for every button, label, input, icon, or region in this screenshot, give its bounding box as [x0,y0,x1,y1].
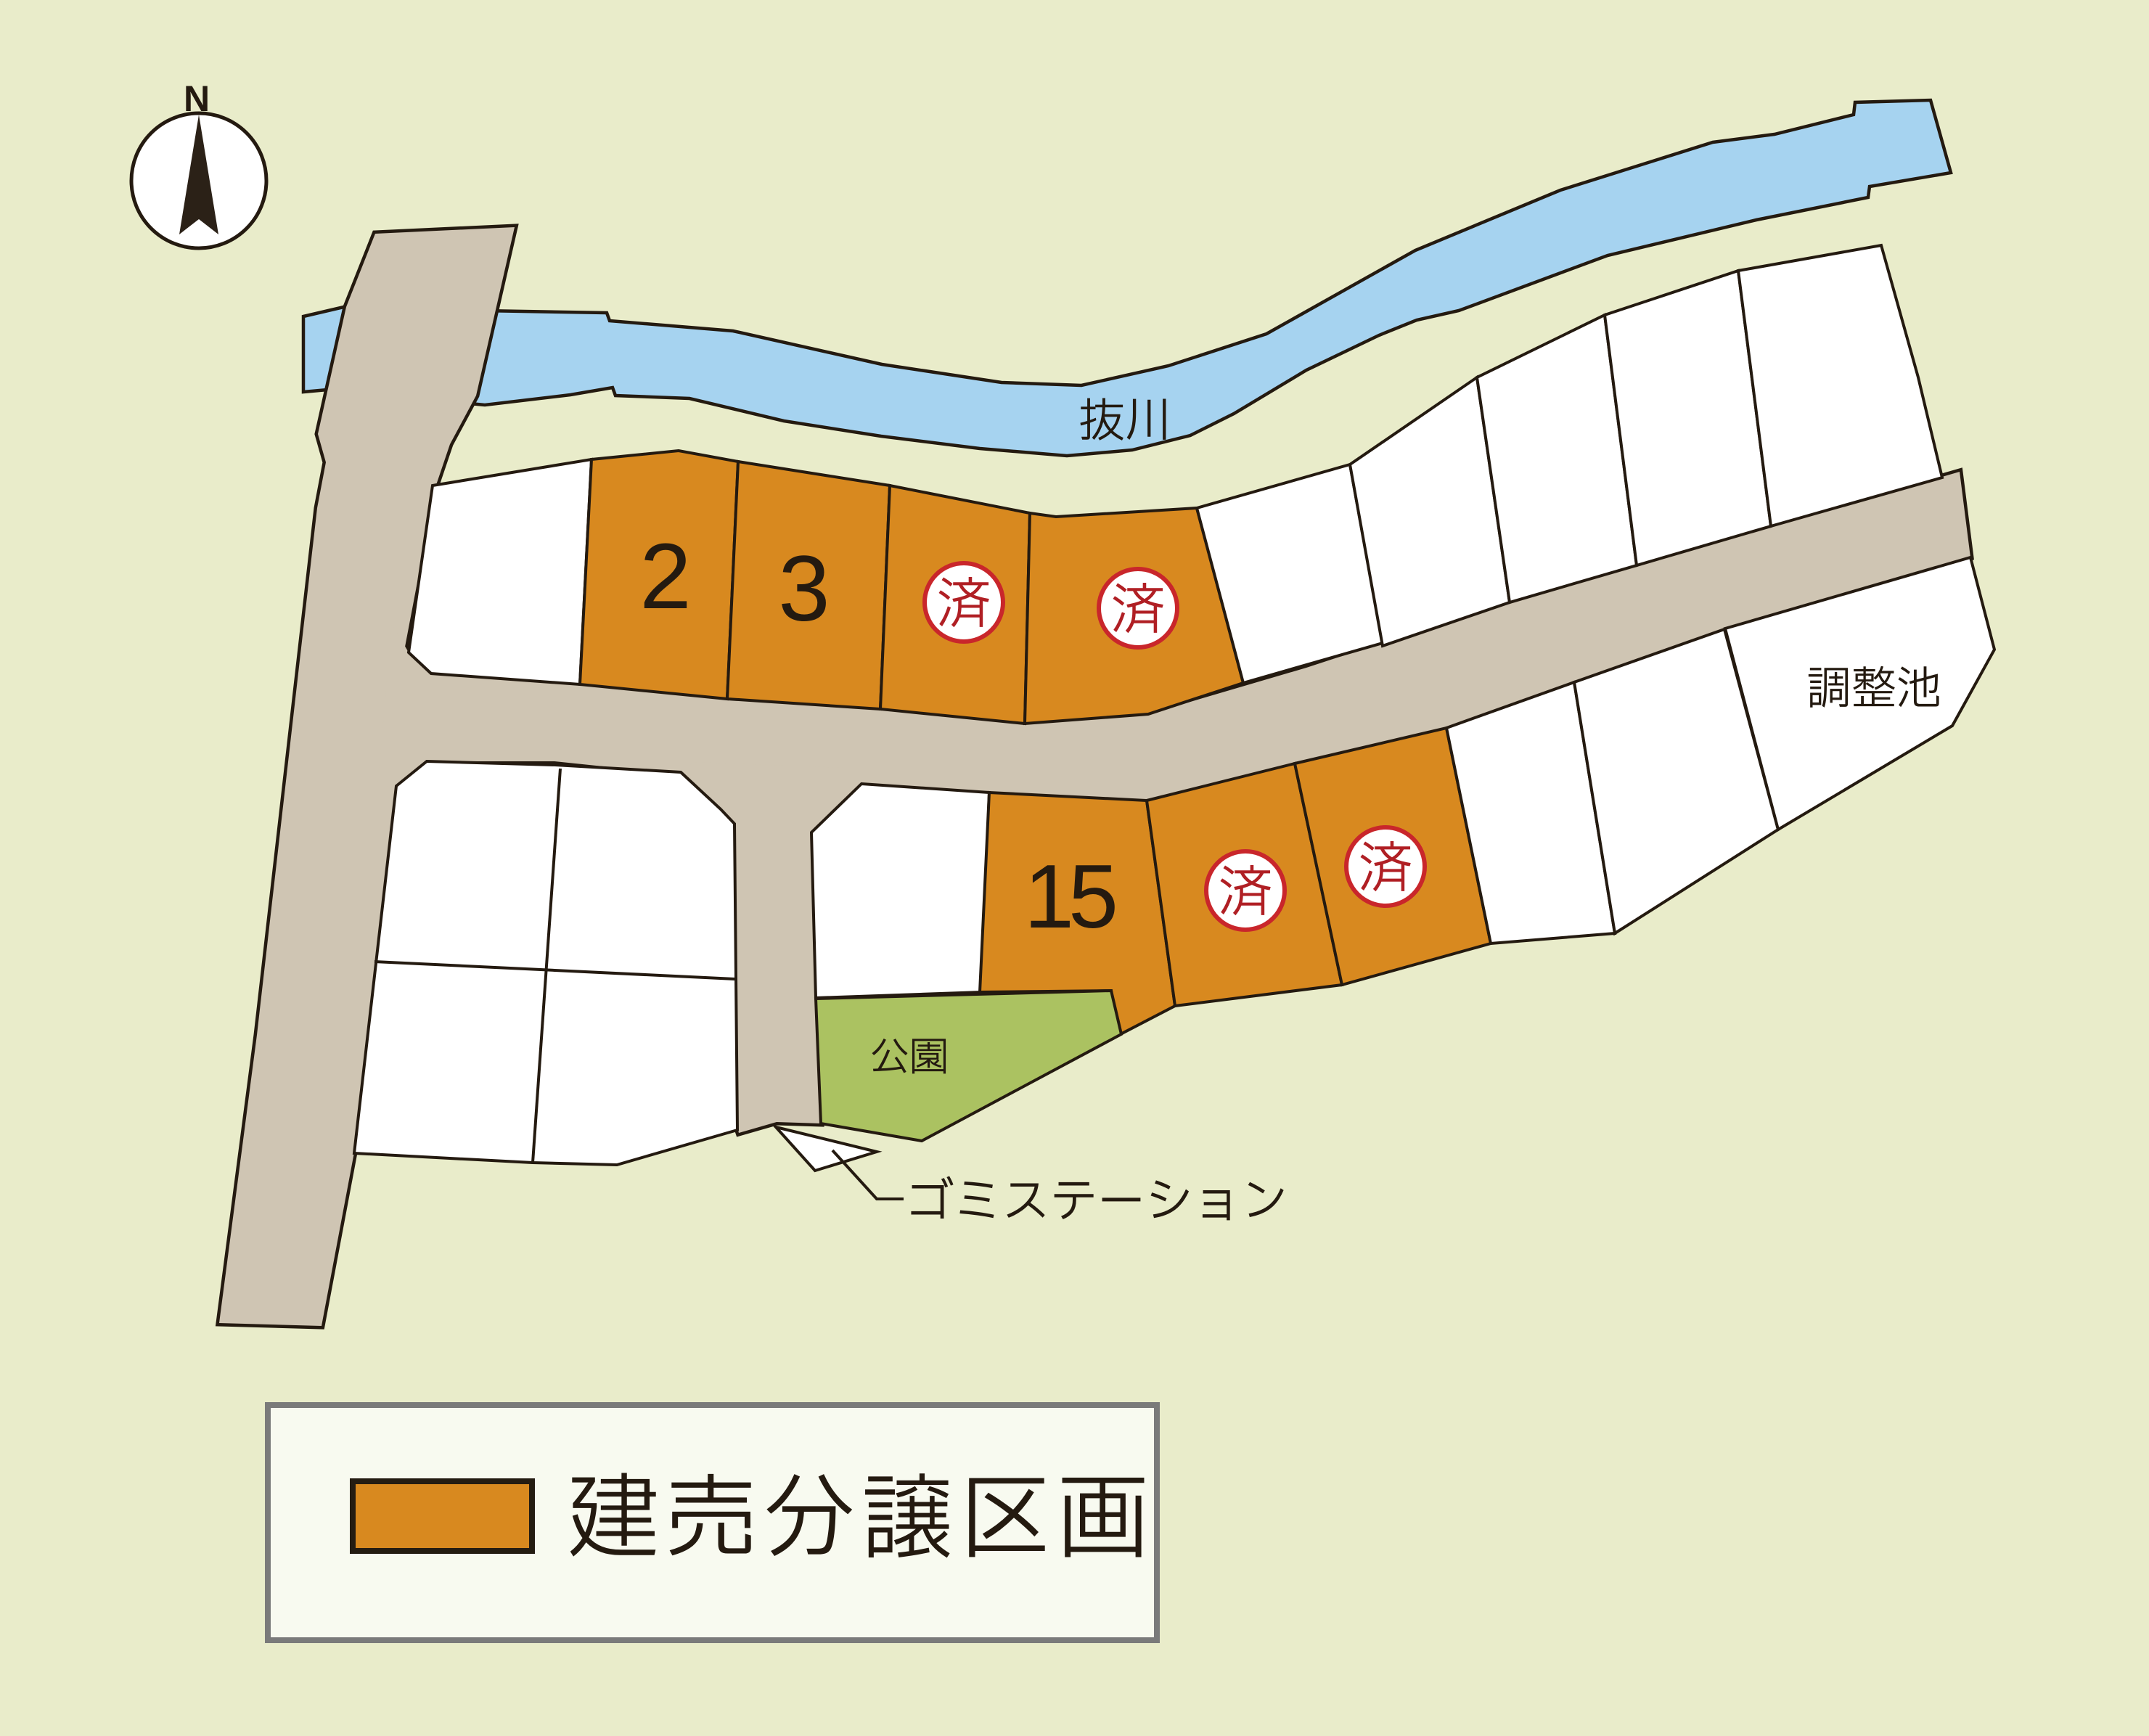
svg-text:15: 15 [1024,847,1115,947]
svg-text:3: 3 [778,537,830,641]
svg-text:N: N [184,78,210,119]
svg-text:2: 2 [639,525,691,629]
